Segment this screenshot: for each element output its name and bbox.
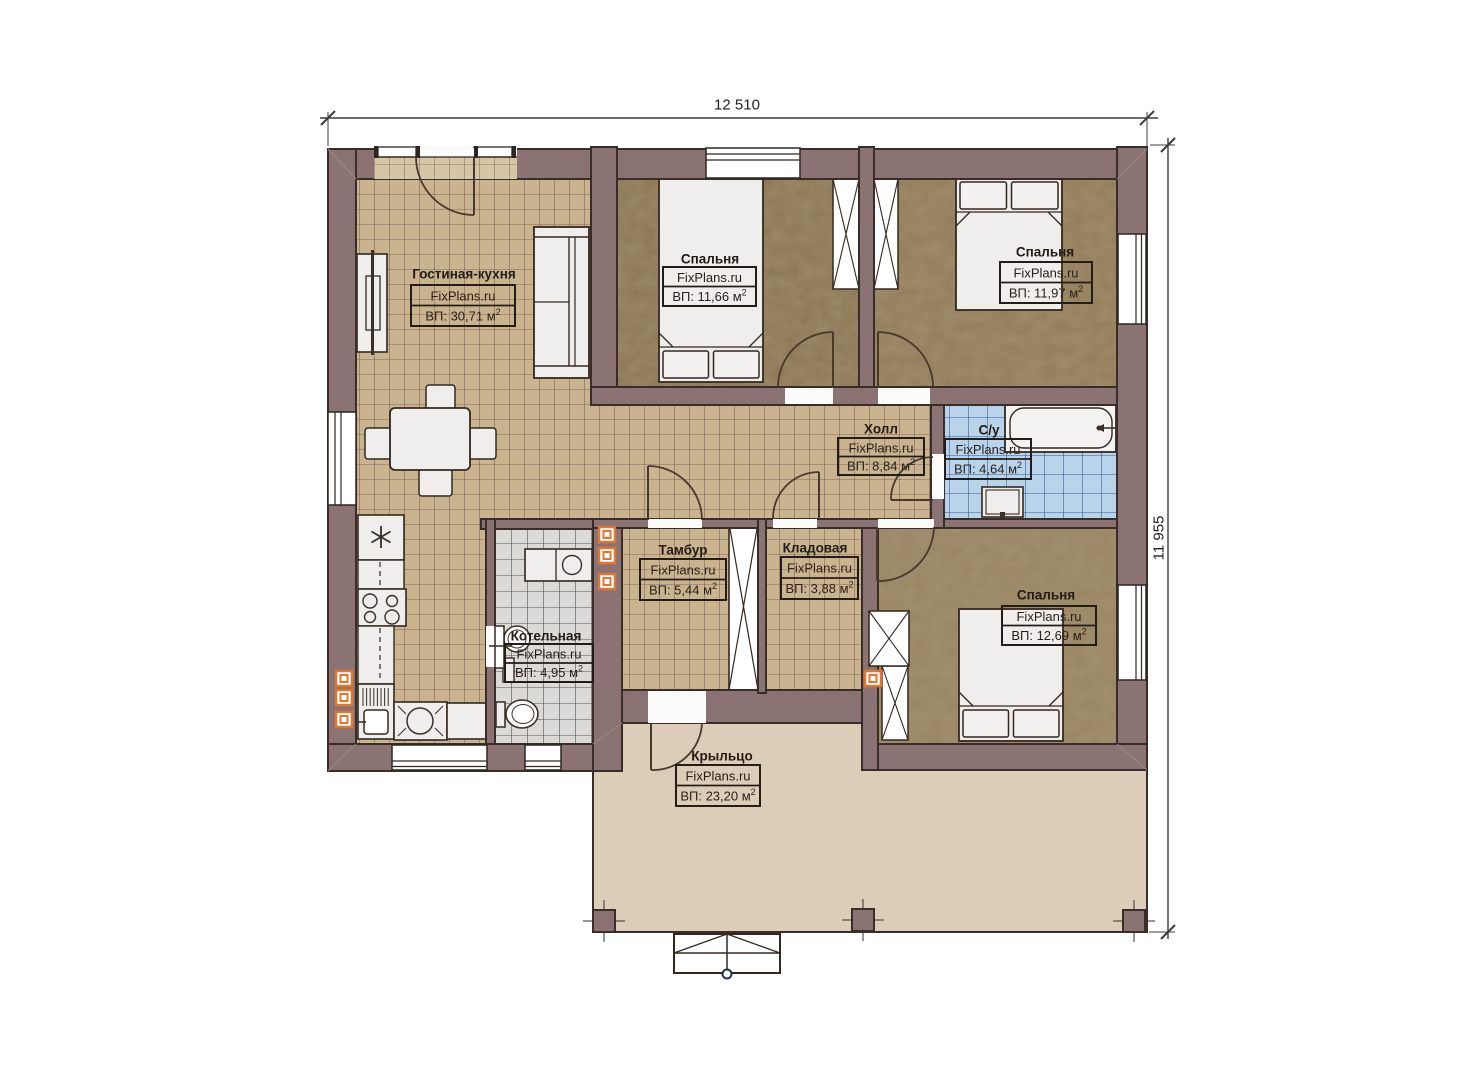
svg-text:Крыльцо: Крыльцо	[691, 749, 752, 764]
svg-text:ВП: 11,66 м2: ВП: 11,66 м2	[672, 287, 746, 304]
svg-text:Холл: Холл	[864, 422, 898, 437]
svg-text:Гостиная-кухня: Гостиная-кухня	[412, 267, 515, 282]
svg-text:ВП: 3,88 м2: ВП: 3,88 м2	[785, 580, 853, 597]
svg-text:FixPlans.ru: FixPlans.ru	[955, 442, 1020, 457]
svg-text:FixPlans.ru: FixPlans.ru	[1013, 265, 1078, 280]
svg-text:FixPlans.ru: FixPlans.ru	[516, 647, 581, 662]
svg-text:FixPlans.ru: FixPlans.ru	[848, 440, 913, 455]
svg-text:FixPlans.ru: FixPlans.ru	[1016, 609, 1081, 624]
svg-text:Котельная: Котельная	[511, 629, 582, 644]
svg-text:FixPlans.ru: FixPlans.ru	[430, 288, 495, 303]
svg-text:ВП: 11,97 м2: ВП: 11,97 м2	[1009, 284, 1083, 301]
svg-text:FixPlans.ru: FixPlans.ru	[650, 562, 715, 577]
svg-text:Спальня: Спальня	[1016, 245, 1074, 260]
svg-text:Спальня: Спальня	[1017, 588, 1075, 603]
svg-text:11 955: 11 955	[1151, 516, 1168, 561]
svg-text:Кладовая: Кладовая	[783, 541, 848, 556]
svg-text:Тамбур: Тамбур	[659, 543, 708, 558]
svg-text:ВП: 30,71 м2: ВП: 30,71 м2	[425, 307, 500, 324]
svg-text:ВП: 4,64 м2: ВП: 4,64 м2	[954, 460, 1022, 477]
svg-text:ВП: 5,44 м2: ВП: 5,44 м2	[649, 581, 717, 598]
svg-text:FixPlans.ru: FixPlans.ru	[787, 561, 852, 576]
svg-text:Спальня: Спальня	[681, 252, 739, 267]
svg-text:ВП: 12,69 м2: ВП: 12,69 м2	[1011, 626, 1086, 643]
svg-text:ВП: 8,84 м2: ВП: 8,84 м2	[847, 457, 915, 474]
svg-text:FixPlans.ru: FixPlans.ru	[685, 768, 750, 783]
svg-text:12 510: 12 510	[714, 97, 760, 114]
svg-text:ВП: 4,95 м2: ВП: 4,95 м2	[515, 664, 583, 681]
svg-text:ВП: 23,20 м2: ВП: 23,20 м2	[680, 787, 755, 804]
svg-text:FixPlans.ru: FixPlans.ru	[677, 270, 742, 285]
svg-text:С/у: С/у	[978, 423, 1000, 438]
